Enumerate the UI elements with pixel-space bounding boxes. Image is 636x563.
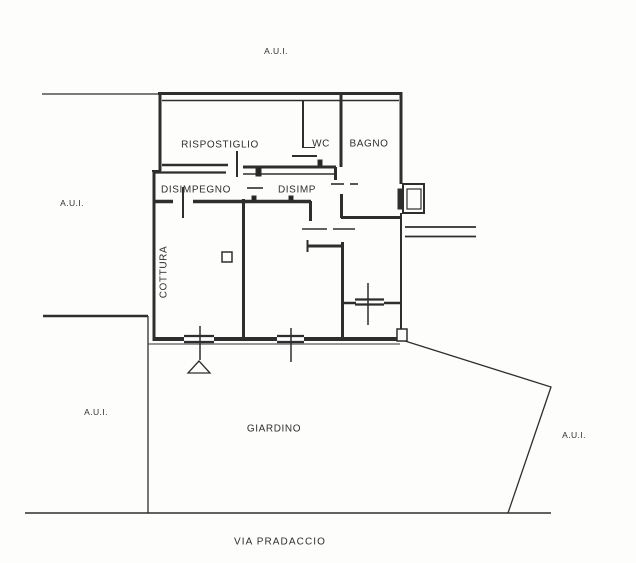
- entrance-triangle-icon: [188, 361, 210, 373]
- interior-walls: [154, 93, 401, 339]
- external-unit-box: [398, 184, 424, 213]
- window-entrance: [184, 326, 214, 373]
- exterior-path-lines: [405, 227, 476, 237]
- label-room-ripostiglio: RISPOSTIGLIO: [181, 140, 259, 151]
- label-room-cottura: COTTURA: [159, 246, 170, 299]
- floor-plan-page: A.U.I. RISPOSTIGLIO WC BAGNO DISIMPEGNO …: [0, 0, 636, 563]
- label-street-name: VIA PRADACCIO: [234, 537, 326, 548]
- label-aui-top: A.U.I.: [264, 46, 288, 56]
- property-boundary-lines: [25, 94, 551, 513]
- misc-symbols: [222, 184, 424, 341]
- label-aui-left: A.U.I.: [60, 198, 84, 208]
- label-aui-bottom-left: A.U.I.: [84, 407, 108, 417]
- window-symbols: [184, 283, 384, 373]
- label-aui-right: A.U.I.: [562, 430, 586, 440]
- label-room-disimp: DISIMP: [278, 185, 316, 196]
- label-room-wc: WC: [312, 139, 330, 150]
- floor-plan-drawing: [0, 0, 636, 563]
- window-living-room: [277, 328, 304, 362]
- label-area-giardino: GIARDINO: [247, 424, 301, 435]
- pillar-symbol: [222, 252, 232, 262]
- window-right-room: [355, 283, 384, 325]
- label-room-bagno: BAGNO: [349, 139, 388, 150]
- label-room-disimpegno: DISIMPEGNO: [161, 185, 231, 196]
- corner-notch: [397, 329, 407, 341]
